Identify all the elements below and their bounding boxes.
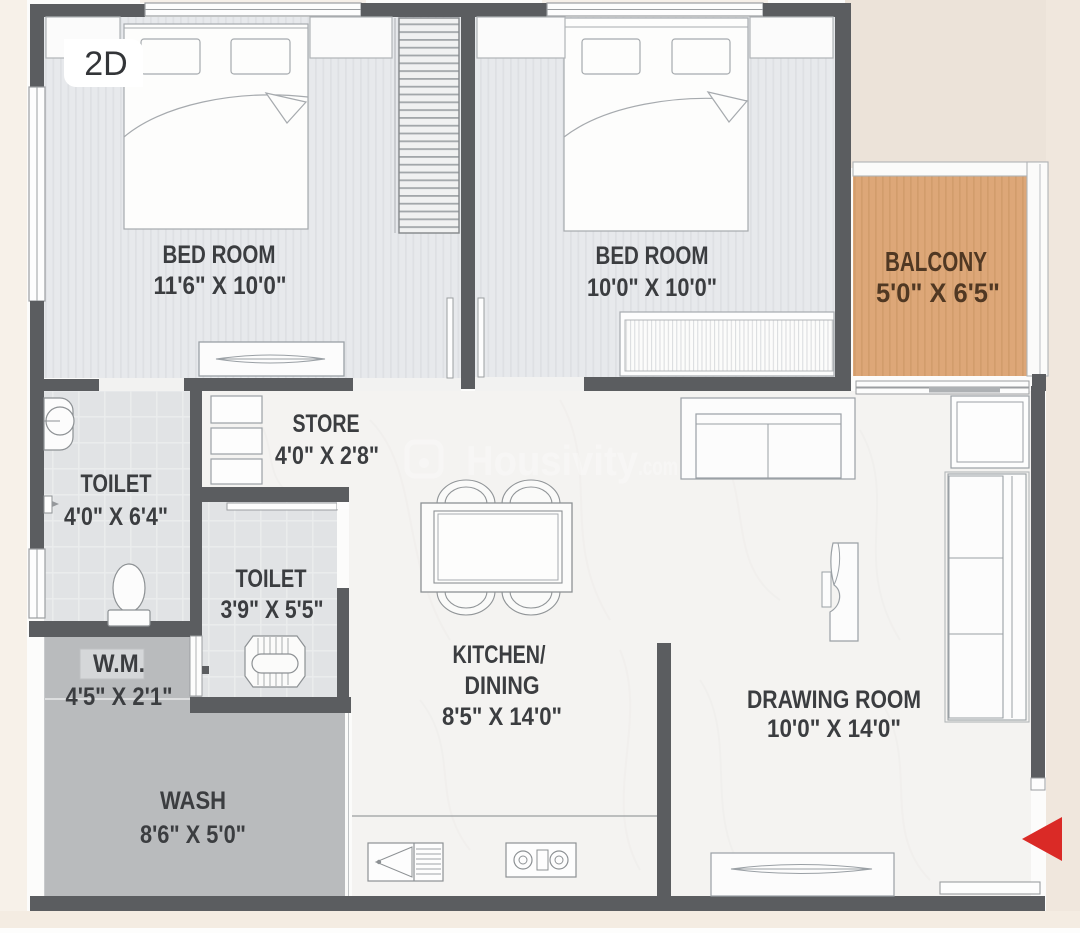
svg-text:4'0" X 6'4": 4'0" X 6'4" [64,503,168,531]
svg-text:WASH: WASH [160,787,226,815]
svg-text:W.M.: W.M. [93,650,145,678]
svg-text:DRAWING ROOM: DRAWING ROOM [747,686,921,714]
svg-text:4'5" X 2'1": 4'5" X 2'1" [66,683,173,711]
svg-text:STORE: STORE [293,410,360,438]
svg-text:.com: .com [638,453,678,481]
svg-text:4'0" X 2'8": 4'0" X 2'8" [275,442,379,470]
svg-text:10'0" X 10'0": 10'0" X 10'0" [587,274,717,302]
svg-text:10'0" X 14'0": 10'0" X 14'0" [767,715,901,743]
svg-text:BALCONY: BALCONY [885,246,987,277]
svg-text:BED ROOM: BED ROOM [596,242,709,270]
svg-text:Housivity: Housivity [466,437,639,484]
svg-text:TOILET: TOILET [236,565,307,593]
svg-text:2D: 2D [84,45,127,83]
svg-text:3'9" X 5'5": 3'9" X 5'5" [221,596,324,624]
svg-text:DINING: DINING [465,672,540,700]
svg-text:BED ROOM: BED ROOM [163,241,276,269]
svg-text:8'5" X 14'0": 8'5" X 14'0" [442,703,562,731]
svg-text:KITCHEN/: KITCHEN/ [453,641,546,669]
svg-text:11'6" X 10'0": 11'6" X 10'0" [154,272,287,300]
svg-text:TOILET: TOILET [81,470,152,498]
svg-text:8'6" X 5'0": 8'6" X 5'0" [140,821,246,849]
svg-text:5'0" X 6'5": 5'0" X 6'5" [876,278,1000,308]
